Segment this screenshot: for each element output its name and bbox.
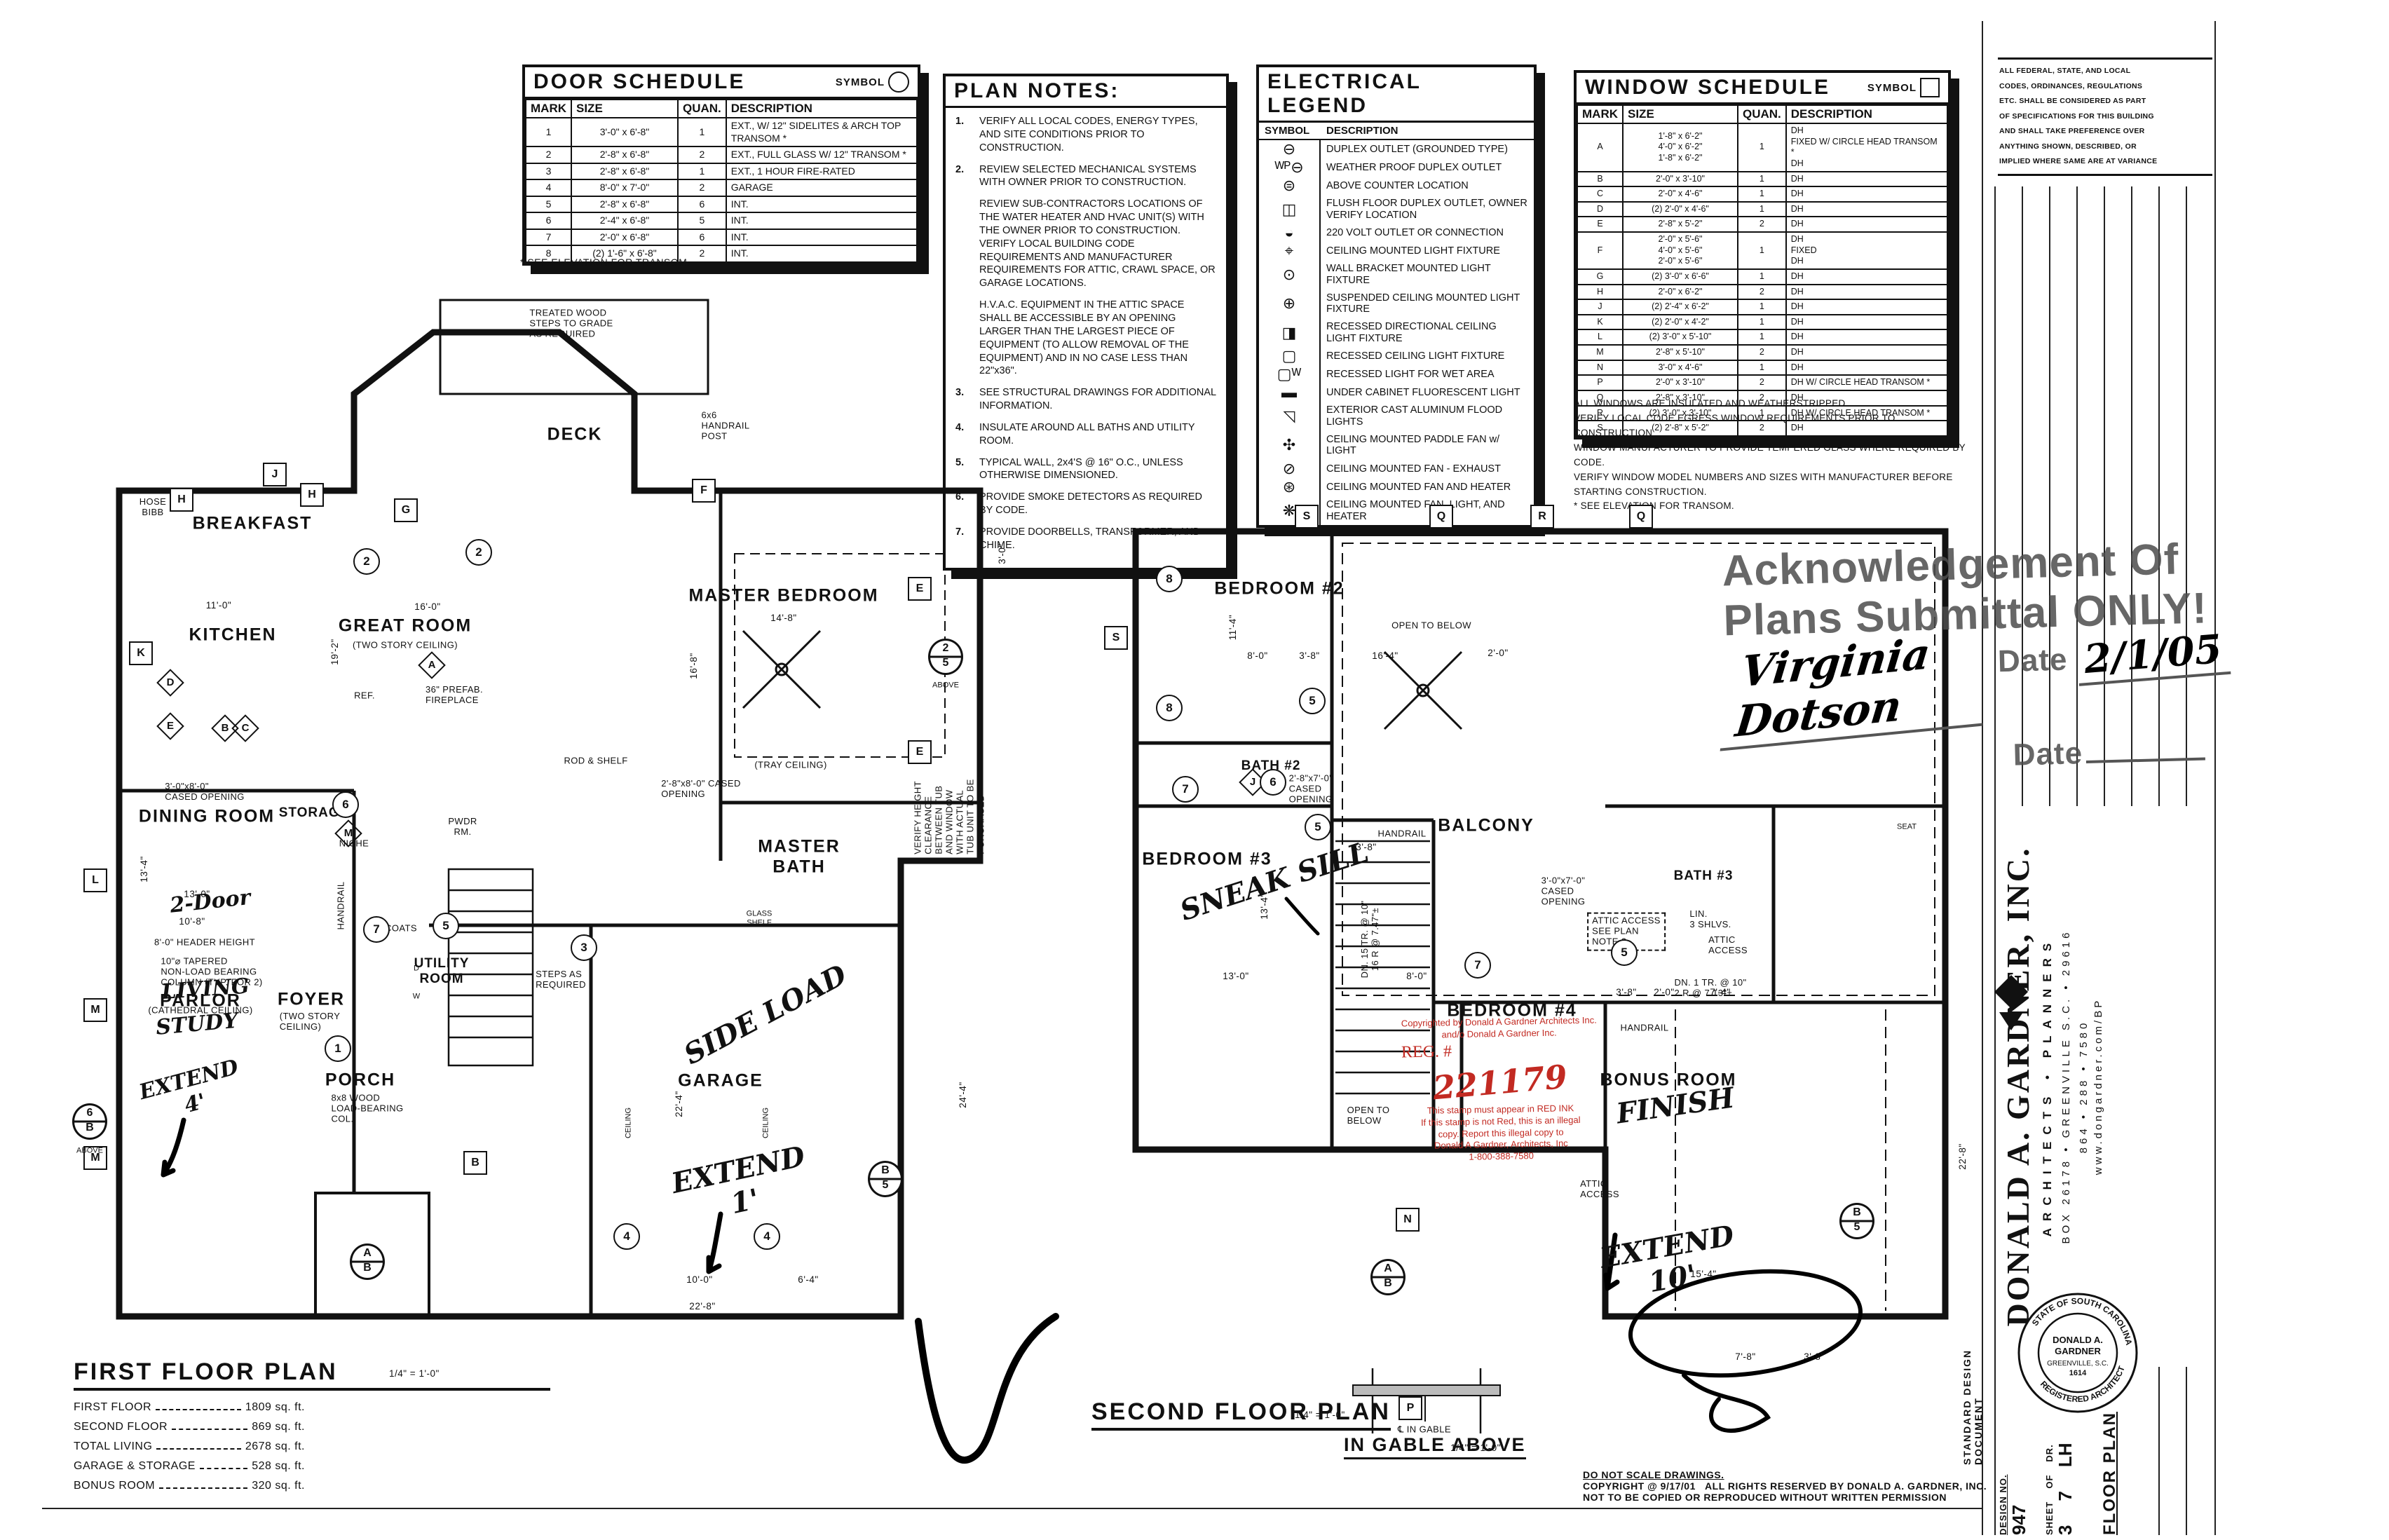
marker-S: S: [1295, 505, 1319, 529]
plan-label: DECK: [547, 425, 603, 445]
marker-3: 3: [571, 934, 597, 961]
marker-7: 7: [1172, 776, 1199, 803]
svg-text:GARDNER: GARDNER: [2055, 1346, 2101, 1356]
area-value: 2678 sq. ft.: [245, 1440, 305, 1453]
firm-logo-icon-2: [1999, 1012, 2023, 1030]
marker-A-B: A B: [1370, 1259, 1406, 1295]
dr-label: DR.: [2044, 1444, 2055, 1461]
plan-label: 8'-0": [1406, 971, 1427, 982]
marker-N: N: [1396, 1208, 1420, 1232]
firm-phone: 864 • 288 • 7580: [2078, 806, 2090, 1367]
plan-label: HANDRAIL: [1621, 1023, 1669, 1034]
plan-label: 16'-0": [414, 601, 440, 613]
plan-label: BALCONY: [1438, 816, 1534, 836]
plan-label: DN. 15 TR. @ 10" 16 R @ 7.47"±: [1360, 901, 1381, 979]
plan-label: VERIFY HEIGHT CLEARANCE BETWEEN TUB AND …: [913, 779, 987, 854]
marker-B-5: B 5: [868, 1161, 903, 1197]
plan-label: 24'-4": [958, 1082, 969, 1108]
title-block-disclaimer: ALL FEDERAL, STATE, AND LOCALCODES, ORDI…: [1998, 57, 2212, 176]
plan-label: 15'-4": [1690, 1269, 1716, 1280]
plan-label: BEDROOM #2: [1214, 579, 1344, 599]
gable-detail-title: IN GABLE ABOVE: [1344, 1434, 1526, 1459]
area-row: BONUS ROOM320 sq. ft.: [74, 1476, 305, 1492]
area-row: FIRST FLOOR1809 sq. ft.: [74, 1398, 305, 1414]
area-row: SECOND FLOOR869 sq. ft.: [74, 1417, 305, 1433]
plan-label: OPEN TO BELOW: [1391, 621, 1471, 632]
marker-2-5: 2 5: [928, 639, 963, 675]
area-name: SECOND FLOOR: [74, 1421, 168, 1433]
plan-label: 3'-0"x8'-0" CASED OPENING: [165, 782, 245, 803]
marker-F: F: [692, 479, 716, 503]
dr-value: LH: [2055, 1443, 2076, 1467]
disclaimer-line: IMPLIED WHERE SAME ARE AT VARIANCE: [1999, 154, 2211, 170]
area-row: GARAGE & STORAGE528 sq. ft.: [74, 1457, 305, 1473]
of-value: 7: [2055, 1491, 2076, 1501]
plan-label: 36" PREFAB. FIREPLACE: [426, 685, 483, 706]
marker-6-B: 6 B: [72, 1103, 107, 1140]
of-label: OF: [2044, 1475, 2055, 1489]
plan-label: 22'-8": [1957, 1143, 1968, 1169]
plan-label: PORCH: [325, 1070, 395, 1091]
svg-text:DONALD A.: DONALD A.: [2053, 1335, 2103, 1345]
plan-label: BATH #3: [1674, 868, 1734, 884]
plan-label: 13'-4": [139, 856, 150, 882]
sheet-value: 3: [2055, 1525, 2076, 1535]
plan-label: CEILING: [625, 1108, 634, 1138]
marker-D: D: [158, 671, 182, 695]
firm-web: www.dongardner.com/BP: [2092, 806, 2104, 1367]
plan-label: TREATED WOOD STEPS TO GRADE AS REQUIRED: [529, 308, 613, 340]
firm-name: DONALD A. GARDNER, INC.: [1999, 806, 2036, 1367]
marker-4: 4: [613, 1223, 640, 1250]
first-floor-scale: 1/4" = 1'-0": [389, 1368, 440, 1379]
plan-label: FOYER: [278, 990, 345, 1010]
marker-2: 2: [465, 539, 492, 566]
firm-address: BOX 26178 • GREENVILLE S.C. • 29616: [2060, 806, 2072, 1367]
marker-7: 7: [363, 916, 390, 943]
plan-label: 19'-2": [329, 639, 341, 665]
plan-label: 22'-8": [689, 1301, 715, 1312]
area-value: 869 sq. ft.: [252, 1421, 305, 1433]
marker-E: E: [908, 577, 932, 601]
plan-label: BREAKFAST: [193, 514, 313, 534]
area-name: TOTAL LIVING: [74, 1440, 152, 1453]
plan-label: 13'-0": [184, 889, 210, 900]
marker-1: 1: [325, 1035, 351, 1062]
marker-P: P: [1398, 1396, 1422, 1420]
plan-label: (TWO STORY CEILING): [280, 1011, 341, 1033]
plan-label: 2'-0": [1654, 987, 1674, 998]
plan-label: DINING ROOM: [139, 807, 275, 827]
plan-label: HANDRAIL: [1378, 829, 1427, 840]
svg-text:1614: 1614: [2069, 1369, 2087, 1377]
marker-B-5: B 5: [1839, 1203, 1874, 1239]
plan-label: 6'-4": [798, 1274, 818, 1286]
plan-label: ATTIC ACCESS: [1580, 1179, 1619, 1200]
plan-label: 8'-0": [1247, 650, 1267, 662]
plan-label: 8x8 WOOD LOAD-BEARING COL.: [331, 1093, 403, 1125]
marker-8: 8: [1156, 566, 1183, 592]
marker-5: 5: [1299, 688, 1326, 714]
second-floor-title: SECOND FLOOR PLAN: [1091, 1398, 1391, 1431]
plan-label: BEDROOM #3: [1142, 850, 1272, 870]
disclaimer-line: ANYTHING SHOWN, DESCRIBED, OR: [1999, 139, 2211, 155]
plan-label: 3'-0"x7'-0" CASED OPENING: [1541, 876, 1586, 908]
marker-G: G: [394, 498, 418, 522]
date-label-2: Date: [2013, 736, 2083, 772]
marker-M: M: [83, 998, 107, 1022]
plan-label: (TRAY CEILING): [754, 761, 826, 771]
design-no-label: DESIGN NO.: [1998, 1372, 2008, 1535]
area-value: 320 sq. ft.: [252, 1480, 305, 1492]
marker-6: 6: [332, 791, 359, 818]
plan-label: SEAT: [1897, 823, 1917, 832]
plan-label: 10'-8": [179, 916, 205, 927]
plan-label: 8'-0" HEADER HEIGHT: [154, 938, 255, 948]
marker-5: 5: [1611, 939, 1638, 966]
plan-label: 10'-0": [686, 1274, 712, 1286]
plan-label: (TWO STORY CEILING): [353, 641, 458, 651]
area-value: 528 sq. ft.: [252, 1460, 305, 1473]
plan-label: UTILITY ROOM: [414, 956, 470, 987]
svg-text:GREENVILLE, S.C.: GREENVILLE, S.C.: [2047, 1360, 2109, 1368]
plan-label: 3'-0": [997, 543, 1008, 564]
plan-label: 13'-0": [1223, 971, 1248, 982]
plan-label: CEILING: [762, 1108, 771, 1138]
plan-label: 3'-8": [1804, 1351, 1824, 1363]
disclaimer-line: AND SHALL TAKE PREFERENCE OVER: [1999, 124, 2211, 139]
first-floor-areas: FIRST FLOOR1809 sq. ft.SECOND FLOOR869 s…: [74, 1398, 550, 1492]
plan-label: OPEN TO BELOW: [1347, 1105, 1390, 1126]
plan-label: W: [413, 993, 420, 1002]
plan-label: STEPS AS REQUIRED: [536, 969, 586, 990]
marker-J: J: [263, 463, 287, 486]
marker-8: 8: [1156, 695, 1183, 721]
plan-label: 11'-4": [1227, 615, 1239, 640]
plan-label: ABOVE: [76, 1147, 103, 1156]
disclaimer-line: ETC. SHALL BE CONSIDERED AS PART: [1999, 94, 2211, 109]
marker-R: R: [1530, 505, 1554, 529]
plan-label: GREAT ROOM: [339, 616, 472, 636]
marker-A-B: A B: [350, 1243, 385, 1280]
plan-label: 3'-8": [1356, 842, 1376, 853]
acknowledgement-stamp: Acknowledgement Of Plans Submittal ONLY!…: [1722, 533, 2232, 781]
plan-label: 16'-8": [688, 653, 700, 679]
marker-M: M: [336, 822, 360, 845]
plan-label: MASTER BATH: [758, 836, 840, 877]
marker-K: K: [129, 641, 153, 665]
marker-C: C: [233, 716, 257, 740]
plan-label: D: [414, 965, 419, 974]
plan-label: PWDR RM.: [448, 817, 477, 838]
marker-Q: Q: [1629, 505, 1653, 529]
firm-block: DONALD A. GARDNER, INC. ARCHITECTS • PLA…: [1999, 806, 2131, 1367]
plan-label: HANDRAIL: [336, 882, 347, 930]
rights-note: ALL RIGHTS RESERVED BY DONALD A. GARDNER…: [1705, 1480, 1987, 1492]
marker-H: H: [170, 488, 193, 512]
marker-7: 7: [1464, 952, 1491, 979]
marker-L: L: [83, 868, 107, 892]
copyright-date: COPYRIGHT @ 9/17/01: [1583, 1480, 1696, 1492]
plan-label: 11'-0": [206, 600, 231, 611]
plan-label: 7'-4": [1710, 987, 1730, 998]
plan-label: 2'-8"x8'-0" CASED OPENING: [661, 779, 740, 800]
plan-label: ATTIC ACCESS: [1708, 935, 1748, 956]
marker-Q: Q: [1429, 505, 1453, 529]
plan-label: ABOVE: [932, 681, 959, 690]
blueprint-sheet: DOOR SCHEDULE SYMBOL MARK SIZE QUAN. DES…: [0, 0, 2389, 1540]
plan-label: ROD & SHELF: [564, 756, 627, 767]
plan-label: 7'-8": [1735, 1351, 1755, 1363]
area-name: FIRST FLOOR: [74, 1401, 151, 1414]
disclaimer-line: OF SPECIFICATIONS FOR THIS BUILDING: [1999, 109, 2211, 125]
plan-label: HOSE BIBB: [139, 497, 166, 518]
marker-B: B: [463, 1151, 487, 1175]
marker-4: 4: [754, 1223, 780, 1250]
do-not-scale-note: DO NOT SCALE DRAWINGS.: [1583, 1469, 1987, 1480]
area-name: BONUS ROOM: [74, 1480, 155, 1492]
plan-label: LIN. 3 SHLVS.: [1689, 909, 1731, 930]
plan-label: REF.: [354, 691, 375, 702]
plan-label: MASTER BEDROOM: [688, 586, 878, 606]
marker-E: E: [158, 714, 182, 738]
marker-5: 5: [1305, 814, 1331, 840]
firm-tagline: ARCHITECTS • PLANNERS: [2041, 806, 2055, 1367]
architect-seal: STATE OF SOUTH CAROLINA REGISTERED ARCHI…: [2016, 1291, 2139, 1415]
marker-6: 6: [1260, 769, 1286, 796]
plan-label: 6x6 HANDRAIL POST: [702, 411, 750, 442]
plan-label: GLASS SHELF: [747, 909, 772, 927]
area-row: TOTAL LIVING2678 sq. ft.: [74, 1437, 305, 1453]
marker-E: E: [908, 740, 932, 764]
marker-5: 5: [433, 913, 459, 939]
plan-label: 3'-8": [1299, 650, 1319, 662]
plan-label: 2'-0": [1488, 648, 1508, 659]
plan-label: 16'-4": [1372, 650, 1398, 662]
plan-label: 3'-8": [1616, 987, 1636, 998]
marker-2: 2: [353, 548, 380, 575]
red-ink-stamp: Copyrighted by Donald A Gardner Architec…: [1401, 1015, 1600, 1165]
marker-H: H: [300, 483, 324, 507]
marker-S: S: [1104, 626, 1128, 650]
date-label-1: Date: [1997, 643, 2068, 680]
plan-label: 22'-4": [674, 1091, 685, 1117]
area-value: 1809 sq. ft.: [245, 1401, 305, 1414]
marker-A: A: [420, 653, 444, 677]
plan-label: 2'-8"x7'-0" CASED OPENING: [1289, 774, 1333, 805]
disclaimer-line: ALL FEDERAL, STATE, AND LOCAL: [1999, 64, 2211, 79]
second-floor-scale: 1/4" = 1'-0": [1295, 1410, 1345, 1420]
plan-label: 14'-8": [770, 613, 796, 624]
no-copy-note: NOT TO BE COPIED OR REPRODUCED WITHOUT W…: [1583, 1492, 1987, 1503]
first-floor-title: FIRST FLOOR PLAN: [74, 1358, 550, 1391]
plan-label: 13'-4": [1259, 893, 1270, 919]
sheet-label: SHEET: [2044, 1501, 2055, 1535]
disclaimer-line: CODES, ORDINANCES, REGULATIONS: [1999, 79, 2211, 95]
plan-label: KITCHEN: [189, 625, 276, 646]
area-name: GARAGE & STORAGE: [74, 1460, 196, 1473]
plan-label: GARAGE: [678, 1071, 763, 1091]
